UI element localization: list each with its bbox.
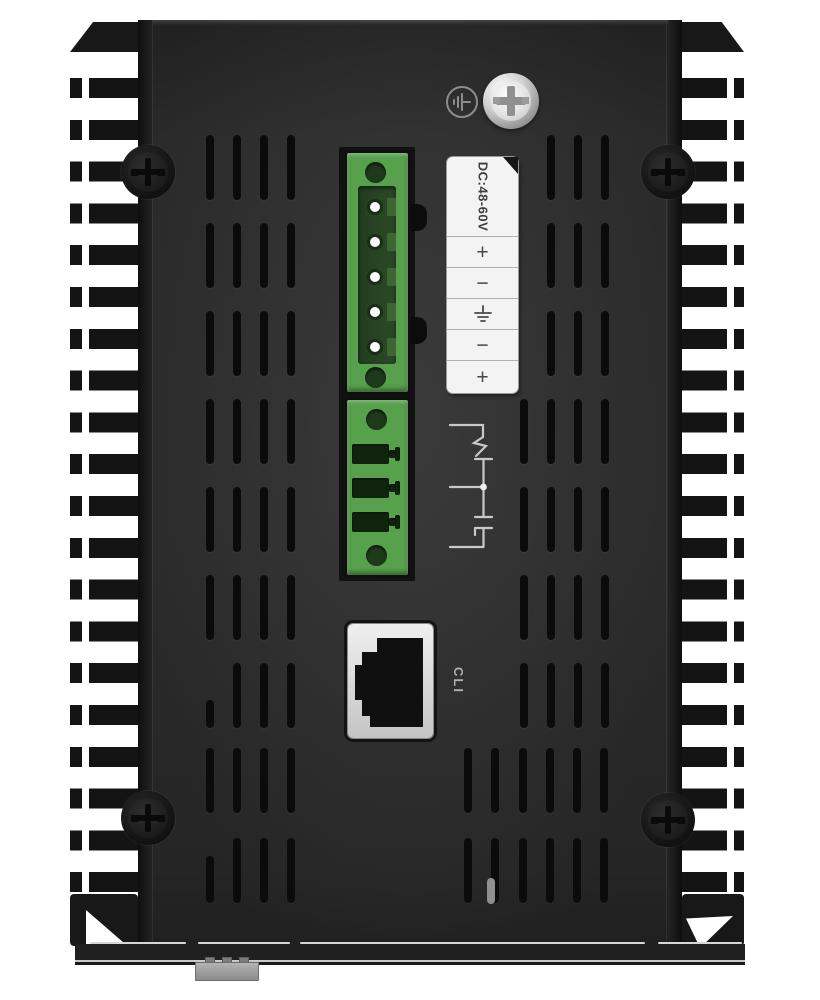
power-rating-label: DC:48-60V + − − + bbox=[447, 157, 518, 393]
console-port-label: CLI bbox=[438, 660, 478, 700]
heatsink-fins-right bbox=[682, 78, 744, 893]
console-port-rj45 bbox=[348, 624, 433, 738]
phillips-screw-icon bbox=[128, 798, 168, 838]
terminal-screw-hole bbox=[365, 367, 386, 388]
device-rear-panel-photo: DC:48-60V + − − + bbox=[0, 0, 820, 1000]
corner-screw-top-right bbox=[641, 145, 695, 199]
corner-screw-bottom-right bbox=[641, 793, 695, 847]
power-pin bbox=[370, 202, 380, 212]
vent-slot-highlight bbox=[487, 878, 495, 904]
power-pin bbox=[370, 237, 380, 247]
power-pin bbox=[370, 342, 380, 352]
heatsink-fins-left bbox=[70, 78, 138, 893]
corner-screw-bottom-left bbox=[121, 791, 175, 845]
connector-latch-tab bbox=[407, 204, 427, 231]
top-left-chamfer bbox=[70, 22, 138, 52]
terminal-screw-hole bbox=[365, 162, 386, 183]
rj45-jack-opening bbox=[348, 624, 433, 738]
corner-screw-top-left bbox=[121, 145, 175, 199]
power-pin bbox=[370, 307, 380, 317]
power-pin bbox=[370, 272, 380, 282]
connector-latch-tab bbox=[407, 317, 427, 344]
din-rail-foot bbox=[75, 962, 745, 965]
grounding-symbol-icon bbox=[446, 86, 478, 118]
terminal-marking-earth bbox=[447, 298, 518, 330]
terminal-marking-minus: − bbox=[447, 329, 518, 361]
top-right-chamfer bbox=[682, 22, 744, 52]
terminal-marking-minus: − bbox=[447, 267, 518, 299]
phillips-screw-icon bbox=[491, 81, 531, 121]
fin-notch-left bbox=[82, 78, 89, 893]
fin-notch-right bbox=[727, 78, 734, 893]
terminal-marking-plus: + bbox=[447, 360, 518, 393]
earth-ground-icon bbox=[473, 305, 493, 325]
phillips-screw-icon bbox=[648, 152, 688, 192]
terminal-marking-plus: + bbox=[447, 236, 518, 268]
phillips-screw-icon bbox=[128, 152, 168, 192]
terminal-screw-hole bbox=[366, 545, 387, 566]
relay-terminal-slot bbox=[352, 444, 389, 464]
relay-terminal-slot bbox=[352, 478, 389, 498]
terminal-screw-hole bbox=[366, 409, 387, 430]
ground-screw bbox=[483, 73, 539, 129]
bottom-connector bbox=[195, 962, 259, 981]
phillips-screw-icon bbox=[648, 800, 688, 840]
power-rating-text: DC:48-60V bbox=[447, 157, 518, 236]
din-rail-base bbox=[75, 944, 745, 961]
relay-terminal-slot bbox=[352, 512, 389, 532]
relay-contact-diagram-icon bbox=[445, 418, 497, 553]
